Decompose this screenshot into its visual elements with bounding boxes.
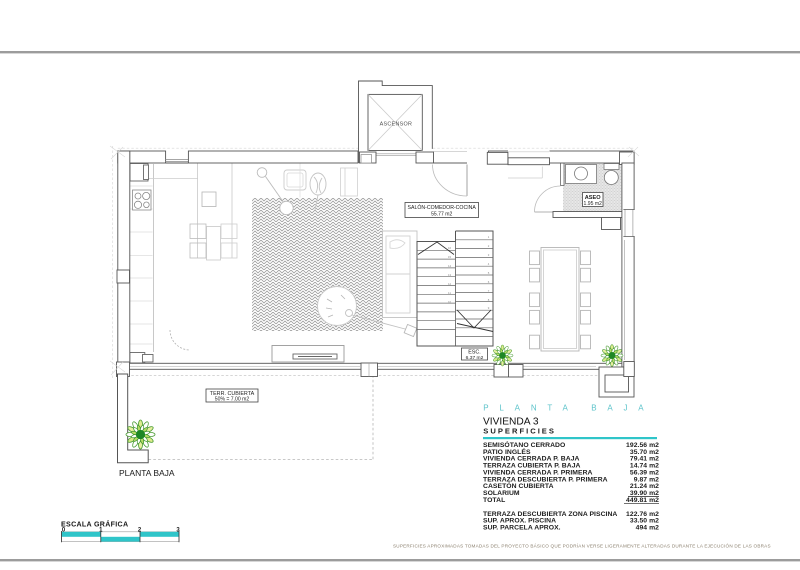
svg-text:15: 15: [448, 255, 452, 259]
svg-text:12: 12: [448, 282, 452, 286]
svg-text:1.95 m2: 1.95 m2: [583, 201, 602, 207]
svg-text:55.77 m2: 55.77 m2: [431, 211, 452, 217]
svg-text:494 m2: 494 m2: [636, 525, 660, 532]
svg-text:PLANTA BAJA: PLANTA BAJA: [483, 404, 654, 413]
svg-text:SUPERFICIES APROXIMADAS TOMADA: SUPERFICIES APROXIMADAS TOMADAS DEL PROY…: [393, 543, 771, 549]
svg-text:ESC.: ESC.: [468, 350, 481, 356]
svg-text:10: 10: [448, 300, 452, 304]
svg-text:ESCALA GRÁFICA: ESCALA GRÁFICA: [61, 520, 128, 529]
svg-text:50% = 7.00 m2: 50% = 7.00 m2: [215, 396, 250, 402]
svg-text:14: 14: [448, 264, 452, 268]
svg-text:SEMISÓTANO CERRADO: SEMISÓTANO CERRADO: [483, 440, 565, 449]
svg-text:SUP. PARCELA APROX.: SUP. PARCELA APROX.: [483, 525, 561, 532]
svg-text:16: 16: [448, 246, 452, 250]
svg-text:11: 11: [448, 291, 451, 295]
svg-text:449.81 m2: 449.81 m2: [626, 497, 659, 504]
svg-text:SUPERFICIES: SUPERFICIES: [483, 427, 556, 436]
svg-text:TOTAL: TOTAL: [483, 497, 505, 504]
svg-text:6.37 m2: 6.37 m2: [466, 355, 484, 361]
svg-text:PLANTA BAJA: PLANTA BAJA: [119, 468, 175, 478]
svg-text:CASETÓN CUBIERTA: CASETÓN CUBIERTA: [483, 481, 554, 490]
svg-text:13: 13: [448, 273, 452, 277]
svg-text:SALÓN-COMEDOR-COCINA: SALÓN-COMEDOR-COCINA: [408, 204, 477, 211]
svg-text:ASCENSOR: ASCENSOR: [380, 121, 413, 127]
svg-text:PATIO INGLÉS: PATIO INGLÉS: [483, 447, 531, 456]
